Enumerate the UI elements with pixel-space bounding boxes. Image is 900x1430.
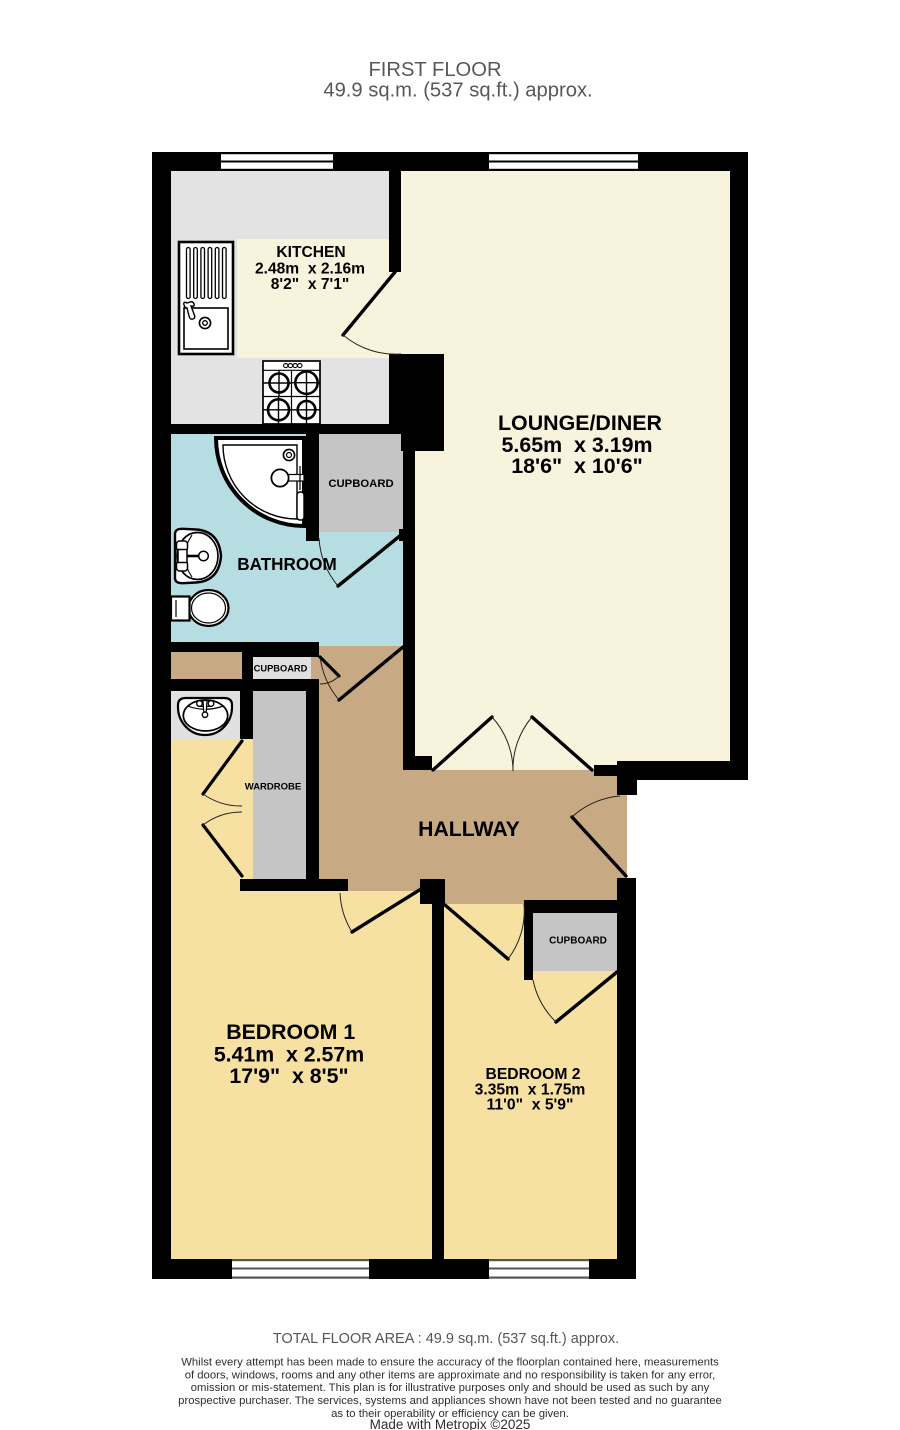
svg-text:omission or mis-statement. Thi: omission or mis-statement. This plan is … [191,1382,710,1394]
svg-text:WARDROBE: WARDROBE [245,782,301,793]
svg-text:2.48m x 2.16m: 2.48m x 2.16m [255,261,365,278]
svg-text:Whilst every attempt has been: Whilst every attempt has been made to en… [181,1357,719,1369]
svg-text:HALLWAY: HALLWAY [418,818,520,841]
svg-text:CUPBOARD: CUPBOARD [328,478,393,490]
svg-text:CUPBOARD: CUPBOARD [549,936,607,947]
svg-text:17'9" x 8'5": 17'9" x 8'5" [229,1064,348,1088]
svg-text:49.9 sq.m. (537 sq.ft.) approx: 49.9 sq.m. (537 sq.ft.) approx. [323,79,592,101]
svg-text:BEDROOM 1: BEDROOM 1 [226,1020,355,1044]
svg-text:18'6" x 10'6": 18'6" x 10'6" [511,454,643,478]
svg-text:TOTAL FLOOR AREA : 49.9 sq.m.: TOTAL FLOOR AREA : 49.9 sq.m. (537 sq.ft… [273,1331,619,1347]
svg-text:FIRST FLOOR: FIRST FLOOR [368,59,501,81]
svg-text:BEDROOM 2: BEDROOM 2 [485,1066,580,1083]
svg-text:5.41m x 2.57m: 5.41m x 2.57m [214,1043,364,1067]
svg-text:LOUNGE/DINER: LOUNGE/DINER [498,411,663,435]
svg-text:CUPBOARD: CUPBOARD [254,664,308,674]
svg-text:11'0" x 5'9": 11'0" x 5'9" [487,1097,574,1114]
svg-text:Made with Metropix ©2025: Made with Metropix ©2025 [370,1417,531,1430]
svg-text:of doors, windows, rooms and a: of doors, windows, rooms and any other i… [185,1369,716,1381]
svg-text:8'2" x 7'1": 8'2" x 7'1" [271,276,350,293]
svg-text:prospective purchaser. The ser: prospective purchaser. The services, sys… [178,1395,722,1407]
svg-text:BATHROOM: BATHROOM [237,555,336,574]
svg-text:KITCHEN: KITCHEN [276,244,345,261]
